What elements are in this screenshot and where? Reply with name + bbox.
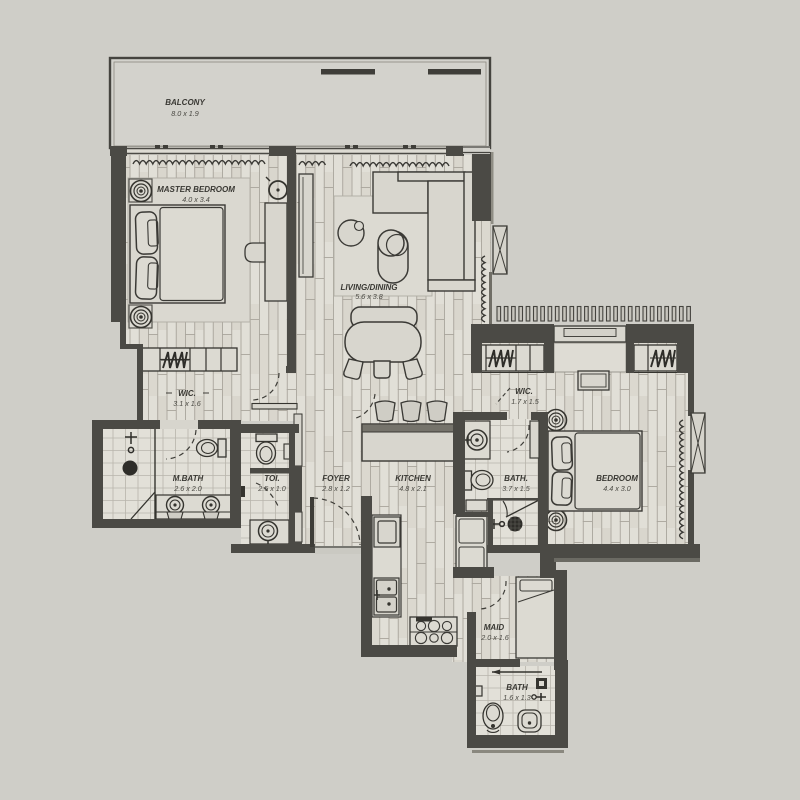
- svg-text:WIC.: WIC.: [178, 389, 196, 398]
- svg-text:3.1 x 1.6: 3.1 x 1.6: [173, 399, 201, 408]
- svg-text:BATH.: BATH.: [504, 474, 528, 483]
- svg-text:4.0 x 3.4: 4.0 x 3.4: [182, 195, 210, 204]
- svg-text:1.7 x 1.5: 1.7 x 1.5: [511, 397, 540, 406]
- svg-text:8.0 x 1.9: 8.0 x 1.9: [171, 109, 199, 118]
- svg-text:TOI.: TOI.: [264, 474, 279, 483]
- svg-text:2.8 x 1.2: 2.8 x 1.2: [321, 484, 350, 493]
- svg-text:1.6 x 1.3: 1.6 x 1.3: [503, 693, 531, 702]
- svg-text:3.7 x 1.5: 3.7 x 1.5: [502, 484, 531, 493]
- svg-text:BEDROOM: BEDROOM: [596, 474, 638, 483]
- svg-text:2.6 x 2.0: 2.6 x 2.0: [173, 484, 202, 493]
- svg-text:2.0 x 1.6: 2.0 x 1.6: [480, 633, 509, 642]
- svg-text:4.4 x 3.0: 4.4 x 3.0: [603, 484, 631, 493]
- svg-text:MASTER BEDROOM: MASTER BEDROOM: [157, 185, 235, 194]
- svg-text:2.5 x 1.0: 2.5 x 1.0: [257, 484, 286, 493]
- svg-text:M.BATH: M.BATH: [173, 474, 204, 483]
- svg-text:KITCHEN: KITCHEN: [395, 474, 431, 483]
- svg-text:5.6 x 3.8: 5.6 x 3.8: [355, 292, 383, 301]
- svg-text:LIVING/DINING: LIVING/DINING: [341, 283, 398, 292]
- svg-text:FOYER: FOYER: [322, 474, 350, 483]
- svg-text:4.8 x 2.1: 4.8 x 2.1: [399, 484, 427, 493]
- svg-text:WIC.: WIC.: [515, 387, 533, 396]
- svg-text:MAID: MAID: [484, 623, 505, 632]
- svg-text:BALCONY: BALCONY: [165, 98, 205, 107]
- svg-text:BATH: BATH: [506, 683, 528, 692]
